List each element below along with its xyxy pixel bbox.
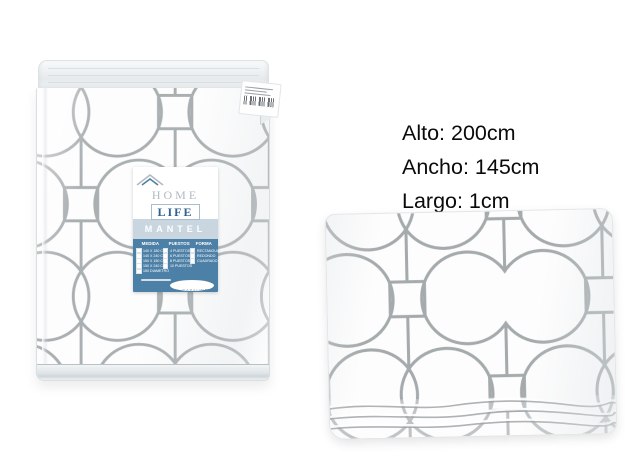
house-roof-icon	[133, 172, 167, 187]
spec-option-label: REDONDO	[197, 254, 215, 258]
spec-option-row: 150 DIAMETRO	[136, 269, 161, 274]
product-photo: HOME LIFE MANTEL MEDIDA140 X 180 CM140 X…	[0, 0, 625, 469]
label-spec-table: MEDIDA140 X 180 CM140 X 240 CM150 X 150 …	[133, 239, 218, 277]
spec-column: FORMARECTANGULARREDONDOCUADRADO	[190, 242, 215, 277]
footer-fine-print	[141, 279, 171, 281]
brand-name-home: HOME	[133, 188, 218, 203]
plastic-crease	[48, 68, 259, 69]
spec-option-label: 140 X 180 CM	[143, 249, 166, 253]
plastic-bag-flap	[38, 60, 269, 91]
barcode	[243, 95, 276, 107]
spec-column-header: MEDIDA	[142, 242, 156, 245]
label-footer: CASALINDA	[133, 277, 218, 292]
spec-option-label: RECTANGULAR	[197, 249, 218, 253]
spec-option-row: CUADRADO	[190, 258, 215, 263]
plastic-crease	[48, 82, 259, 83]
brand-name-life: LIFE	[151, 204, 199, 220]
label-brand-area: HOME LIFE	[133, 167, 218, 219]
spec-option-label: 140 X 240 CM	[143, 254, 166, 258]
maker-name: CASALINDA	[182, 287, 212, 291]
spec-option-label: 10 PUESTOS	[170, 264, 192, 268]
plastic-crease	[48, 75, 259, 76]
plastic-bag-bottom-seam	[37, 364, 269, 380]
spec-option-label: 150 X 240 CM	[143, 264, 166, 268]
spec-column-header: PUESTOS	[169, 242, 183, 245]
spec-option-label: 6 PUESTOS	[170, 254, 190, 258]
product-label: HOME LIFE MANTEL MEDIDA140 X 180 CM140 X…	[133, 167, 218, 292]
dimensions-text: Alto: 200cm Ancho: 145cm Largo: 1cm	[402, 116, 539, 218]
dimension-alto: Alto: 200cm	[402, 116, 539, 150]
spec-option-label: CUADRADO	[197, 259, 218, 263]
packaged-tablecloth: HOME LIFE MANTEL MEDIDA140 X 180 CM140 X…	[36, 60, 268, 380]
tablecloth-pattern	[326, 209, 617, 439]
barcode-sticker	[238, 80, 281, 118]
spec-option-label: 150 X 150 CM	[143, 259, 166, 263]
spec-option-label: 150 DIAMETRO	[143, 270, 169, 274]
product-name: MANTEL	[133, 219, 218, 239]
folded-tablecloth	[325, 208, 618, 440]
spec-option-label: 8 PUESTOS	[170, 259, 190, 263]
spec-column-header: FORMA	[195, 242, 209, 245]
checkbox-icon	[136, 269, 142, 275]
dimension-ancho: Ancho: 145cm	[402, 150, 539, 184]
maker-badge: CASALINDA	[170, 280, 214, 291]
spec-option-label: 4 PUESTOS	[170, 249, 190, 253]
spec-column: MEDIDA140 X 180 CM140 X 240 CM150 X 150 …	[136, 242, 161, 277]
